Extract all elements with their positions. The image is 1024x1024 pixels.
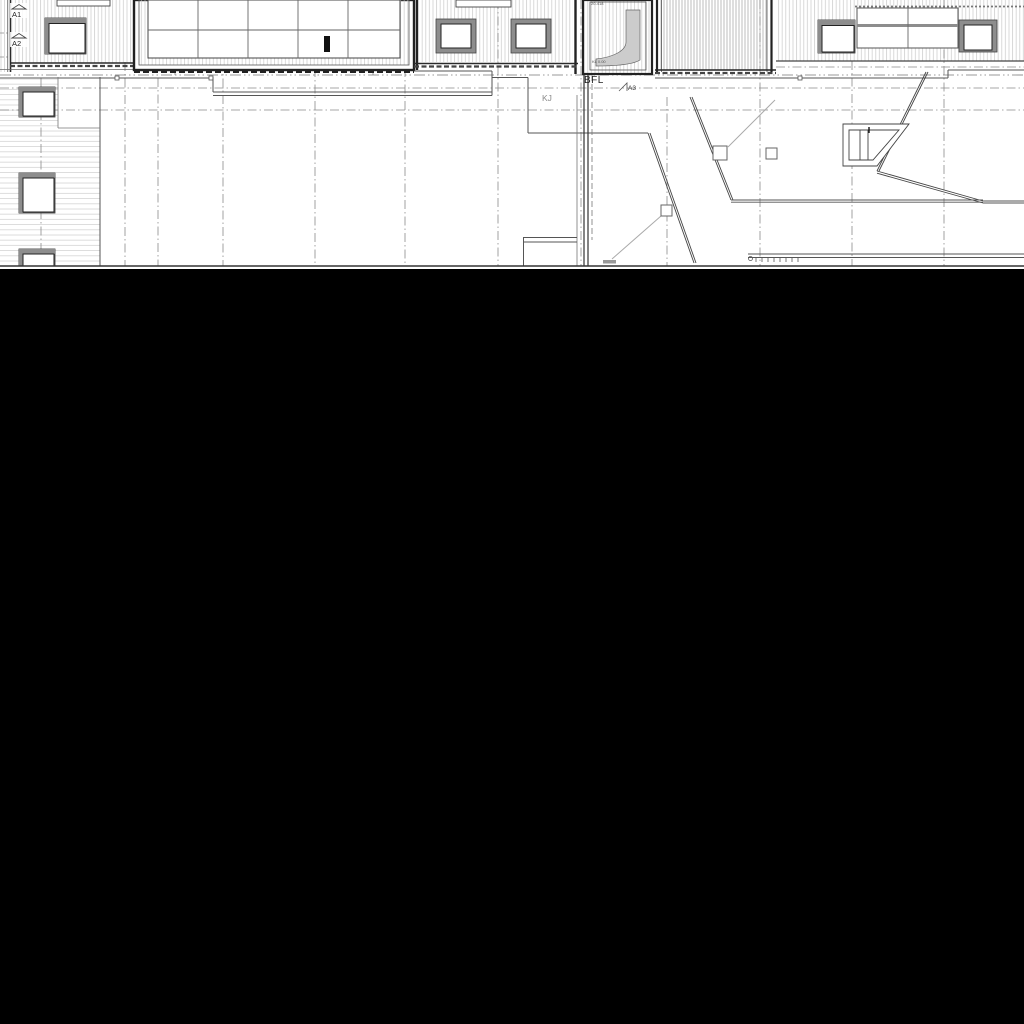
plaza-gray-bar — [603, 260, 616, 264]
marker-label-a1: A1 — [12, 10, 21, 19]
tiny-annotation-block — [324, 36, 330, 52]
roof-opening-small — [456, 0, 511, 7]
plaza-diagonals — [603, 72, 1024, 264]
stair-comb — [748, 254, 1024, 262]
plaza-feature-square — [766, 148, 777, 159]
ramp-element: 20-418 KL 0.00 — [583, 0, 652, 74]
elevation-marker-a1: A1 — [10, 3, 29, 19]
roof-plan-svg: A1 A2 — [0, 0, 1024, 269]
terrace-step-outline — [213, 71, 648, 133]
label-a3: A3 — [628, 85, 636, 92]
plaza-feature-square — [661, 205, 672, 216]
cad-drawing-canvas[interactable]: A1 A2 — [0, 0, 1024, 269]
rooflight — [45, 18, 86, 54]
label-kj: KJ — [542, 93, 552, 103]
plaza-feature-square — [713, 146, 727, 160]
marker-label-a2: A2 — [12, 39, 21, 48]
rooflight — [19, 249, 55, 266]
rooflight — [959, 20, 997, 52]
label-bfl: BFL — [584, 75, 604, 86]
rooflight — [19, 173, 55, 213]
elevation-marker-a2: A2 — [10, 32, 29, 48]
rooflight — [511, 19, 551, 53]
roof-opening-small — [57, 0, 110, 6]
rooflight — [19, 87, 55, 117]
central-skylight-building — [134, 0, 414, 72]
lower-opening — [523, 238, 577, 267]
rooflight-pair-wide — [857, 8, 958, 48]
section-flag-icon — [619, 83, 627, 91]
rooflight — [818, 20, 855, 53]
trapezoid-skylight — [843, 124, 909, 166]
ramp-annotation-top: 20-418 — [591, 1, 604, 6]
ramp-annotation-bottom: KL 0.00 — [592, 59, 606, 64]
wall-line-bundle — [577, 75, 592, 266]
skylight-grid — [148, 0, 400, 58]
text-annotations: BFL A3 KJ — [542, 75, 636, 103]
rooflight — [436, 19, 476, 53]
screenshot-root: A1 A2 — [0, 0, 1024, 1024]
black-void-region — [0, 269, 1024, 1024]
